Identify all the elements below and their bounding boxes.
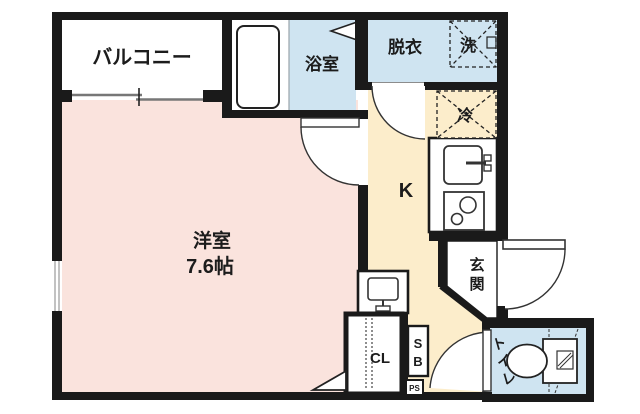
closet-label: CL: [370, 350, 390, 367]
floor-plan: バルコニー 浴室 脱衣 洗 冷 K 洋室 7.6帖 玄 関 CL S B PS …: [0, 0, 640, 414]
dressing-room-label: 脱衣: [388, 37, 422, 57]
entrance-label-char1: 玄: [469, 256, 484, 274]
wash-basin: [358, 271, 408, 313]
bathtub: [237, 26, 279, 108]
pipe-space-label: PS: [409, 384, 420, 393]
bathroom-label: 浴室: [305, 54, 339, 74]
shoe-box-label-char2: B: [413, 354, 422, 369]
kitchen-sink: [444, 146, 482, 184]
washer-label: 洗: [460, 36, 476, 55]
entrance-door: [503, 240, 565, 309]
left-window: [52, 261, 62, 311]
kitchen-counter: [429, 138, 497, 232]
kitchen-label: K: [399, 180, 414, 202]
main-room-name-label: 洋室: [193, 229, 231, 252]
floor-plan-svg: バルコニー 浴室 脱衣 洗 冷 K 洋室 7.6帖 玄 関 CL S B PS …: [0, 0, 640, 414]
balcony-label: バルコニー: [92, 46, 192, 69]
entrance-label-char2: 関: [469, 276, 484, 293]
shoe-box-label-char1: S: [414, 336, 423, 351]
main-room-size-label: 7.6帖: [186, 255, 234, 278]
fridge-label: 冷: [457, 106, 473, 125]
